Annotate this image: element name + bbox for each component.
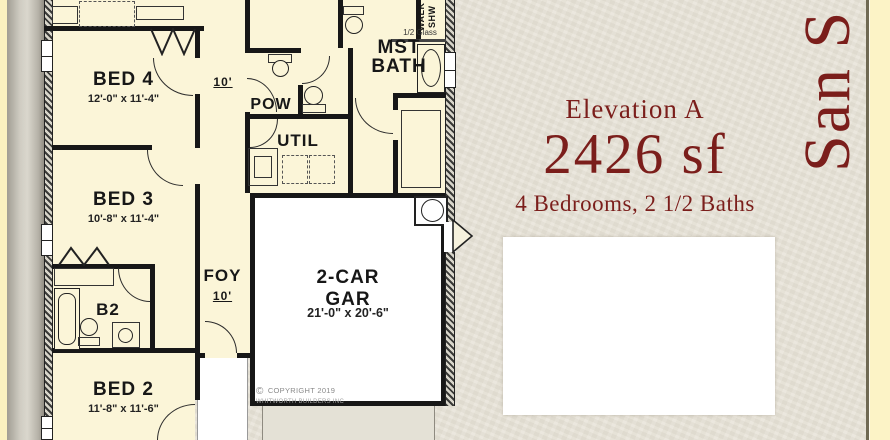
room-label-pow: POW <box>242 97 300 113</box>
utility-cabinet <box>254 156 272 178</box>
plan-name-vertical: San S <box>795 10 861 172</box>
closet-shelf <box>54 268 114 286</box>
copyright-note: © COPYRIGHT 2019 WHITWORTH BUILDERS INC <box>256 379 396 407</box>
copyright-symbol-icon: © <box>256 386 263 397</box>
driveway <box>262 406 435 440</box>
window <box>41 224 53 256</box>
photo-placeholder <box>503 237 775 415</box>
room-dims-bed3: 10'-8" x 11'-4" <box>52 214 195 225</box>
hallway-floor <box>195 0 250 358</box>
flyer-page: BED 4 12'-0" x 11'-4" 10' POW MSTBATH WA… <box>0 0 890 440</box>
elevation-label: Elevation A <box>500 96 770 123</box>
dryer-icon <box>309 155 335 184</box>
closet-shelf <box>136 6 184 20</box>
toilet-icon <box>302 104 326 113</box>
washer-icon <box>282 155 308 184</box>
toilet-icon <box>80 318 98 336</box>
wall-segment <box>393 93 398 110</box>
hall-width-label: 10' <box>200 76 246 88</box>
toilet-icon <box>78 337 100 346</box>
room-label-b2: B2 <box>80 301 136 318</box>
closet-shelf-dashed <box>79 1 135 27</box>
floor-plan: BED 4 12'-0" x 11'-4" 10' POW MSTBATH WA… <box>0 0 480 440</box>
room-label-bed2: BED 2 <box>52 380 195 399</box>
wall-segment <box>245 48 301 53</box>
room-dims-foy: 10' <box>197 290 248 302</box>
wall-segment <box>245 0 250 50</box>
wall-segment <box>195 353 200 400</box>
bifold-door-icon <box>150 28 196 56</box>
copyright-line2: WHITWORTH BUILDERS INC <box>256 399 396 407</box>
wall-segment <box>237 353 250 358</box>
toilet-icon <box>304 86 323 105</box>
sink-icon <box>118 328 133 343</box>
water-heater-icon <box>421 199 444 222</box>
toilet-icon <box>343 6 364 15</box>
master-closet-shelf <box>401 110 441 188</box>
wall-segment <box>150 264 155 353</box>
room-dims-bed4: 12'-0" x 11'-4" <box>52 94 195 105</box>
wall-segment <box>195 353 205 358</box>
shw-line2: SHW <box>427 6 437 29</box>
shw-line1: WALK <box>416 3 426 32</box>
toilet-icon <box>345 16 363 34</box>
room-label-foy: FOY <box>197 267 248 284</box>
square-footage: 2426 sf <box>492 126 778 183</box>
room-label-garage: 2-CARGAR <box>276 267 420 311</box>
wall-segment <box>393 140 398 193</box>
beds-baths-line: 4 Bedrooms, 2 1/2 Baths <box>488 192 782 215</box>
window <box>41 416 53 440</box>
right-edge-strip <box>869 0 890 440</box>
bifold-door-icon <box>58 246 110 266</box>
room-label-bed3: BED 3 <box>52 190 195 209</box>
closet-shelf <box>52 6 78 24</box>
sink-icon <box>272 60 289 77</box>
room-dims-garage: 21'-0" x 20'-6" <box>276 307 420 320</box>
wall-segment <box>393 93 446 98</box>
door-leaf-icon <box>452 218 474 254</box>
porch-floor <box>197 358 248 440</box>
mst-line2: BATH <box>371 56 426 77</box>
mst-line1: MST <box>377 37 420 58</box>
room-dims-bed2: 11'-8" x 11'-6" <box>52 404 195 415</box>
wall-segment <box>52 145 152 150</box>
half-glass-label: 1/2 Glass <box>394 28 446 37</box>
room-label-util: UTIL <box>258 132 338 149</box>
room-label-bed4: BED 4 <box>52 70 195 89</box>
copyright-line1: COPYRIGHT 2019 <box>268 386 335 395</box>
bathtub-icon <box>58 293 76 345</box>
wall-segment <box>195 94 200 148</box>
room-label-mst-bath: MSTBATH <box>352 38 446 76</box>
gar-line1: 2-CAR <box>316 267 379 288</box>
window <box>41 40 53 72</box>
